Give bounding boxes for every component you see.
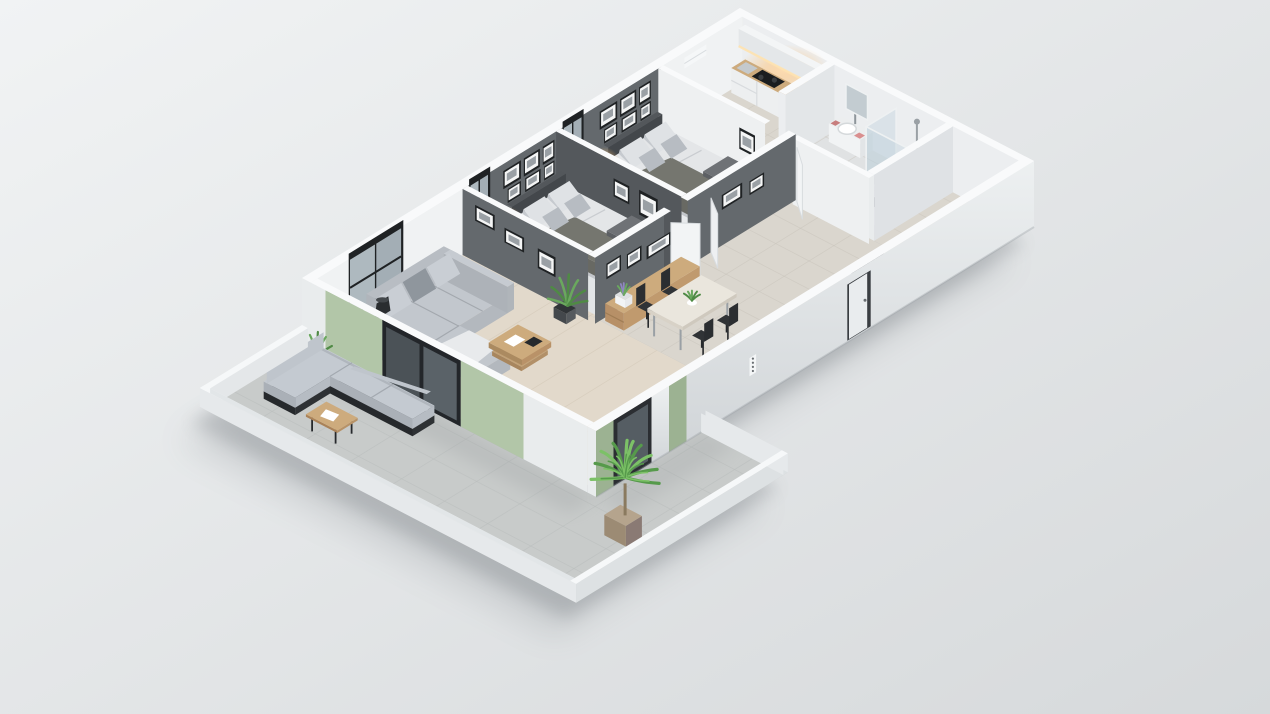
washbasin	[838, 123, 856, 134]
floorplan-render: 3D isometric cutaway floor plan render o…	[0, 0, 1270, 714]
isometric-apartment-svg	[0, 0, 1270, 714]
